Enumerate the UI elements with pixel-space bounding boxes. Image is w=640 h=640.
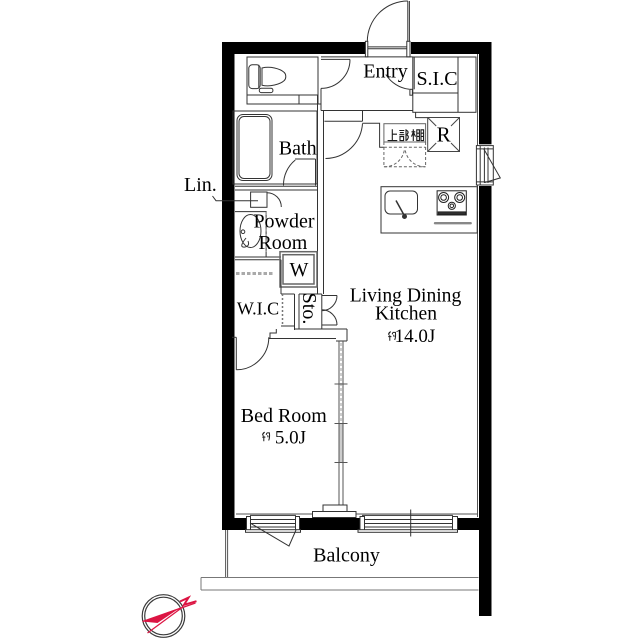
svg-text:Bath: Bath (279, 137, 317, 159)
svg-text:5.0J: 5.0J (275, 428, 306, 449)
svg-text:Lin.: Lin. (184, 174, 217, 196)
svg-text:Kitchen: Kitchen (375, 304, 437, 325)
svg-text:Entry: Entry (363, 61, 407, 83)
svg-text:14.0J: 14.0J (395, 326, 436, 347)
svg-text:W: W (290, 259, 309, 281)
svg-text:W.I.C: W.I.C (237, 299, 279, 319)
svg-text:Balcony: Balcony (313, 545, 380, 567)
svg-text:Bed Room: Bed Room (241, 405, 328, 427)
svg-text:Powder: Powder (253, 211, 314, 233)
svg-text:S.I.C: S.I.C (416, 68, 457, 90)
svg-text:Sto.: Sto. (298, 293, 320, 325)
svg-text:R: R (437, 123, 451, 147)
svg-text:Room: Room (258, 232, 307, 254)
